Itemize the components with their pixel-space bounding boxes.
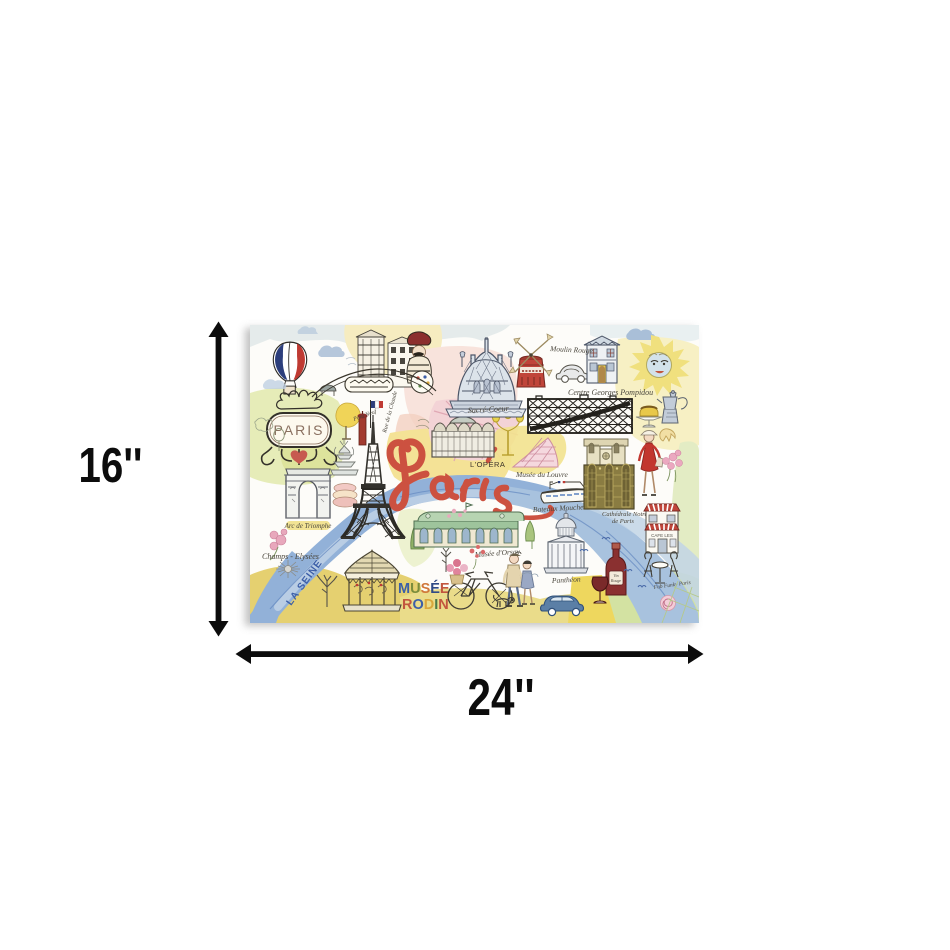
svg-text:Rouge: Rouge xyxy=(610,578,621,583)
svg-text:L'OPÉRA: L'OPÉRA xyxy=(470,460,505,469)
svg-text:Musée du Louvre: Musée du Louvre xyxy=(515,470,568,479)
svg-text:Panthéon: Panthéon xyxy=(551,574,581,585)
svg-text:MUSÉE: MUSÉE xyxy=(398,580,450,597)
svg-text:CAFE LES: CAFE LES xyxy=(651,533,673,538)
svg-text:16'': 16'' xyxy=(79,439,143,493)
svg-text:RODIN: RODIN xyxy=(402,597,449,613)
svg-text:Champs - Elysées: Champs - Elysées xyxy=(262,552,319,561)
svg-text:PARIS: PARIS xyxy=(274,422,325,438)
svg-text:24'': 24'' xyxy=(468,669,535,727)
svg-text:Arc de Triomphe: Arc de Triomphe xyxy=(284,522,332,530)
svg-text:de Paris: de Paris xyxy=(612,518,634,525)
